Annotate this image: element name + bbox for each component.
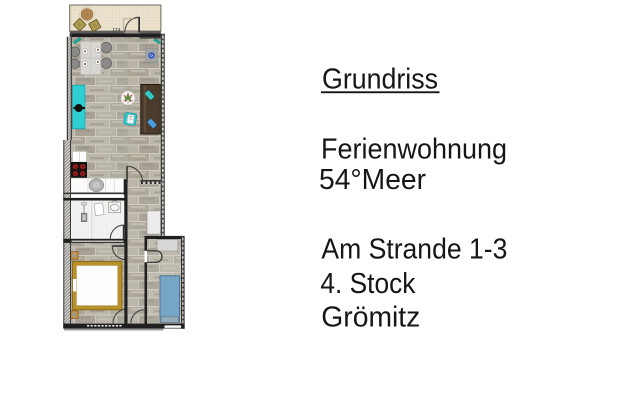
svg-text:54°Meer: 54°Meer — [319, 164, 427, 196]
svg-text:174: 174 — [113, 27, 121, 32]
svg-text:Grömitz: Grömitz — [321, 302, 420, 334]
svg-text:Grundriss: Grundriss — [322, 64, 438, 96]
svg-text:Am Strande 1-3: Am Strande 1-3 — [321, 234, 507, 266]
svg-text:4. Stock: 4. Stock — [320, 268, 416, 300]
svg-text:Ferienwohnung: Ferienwohnung — [321, 134, 507, 166]
